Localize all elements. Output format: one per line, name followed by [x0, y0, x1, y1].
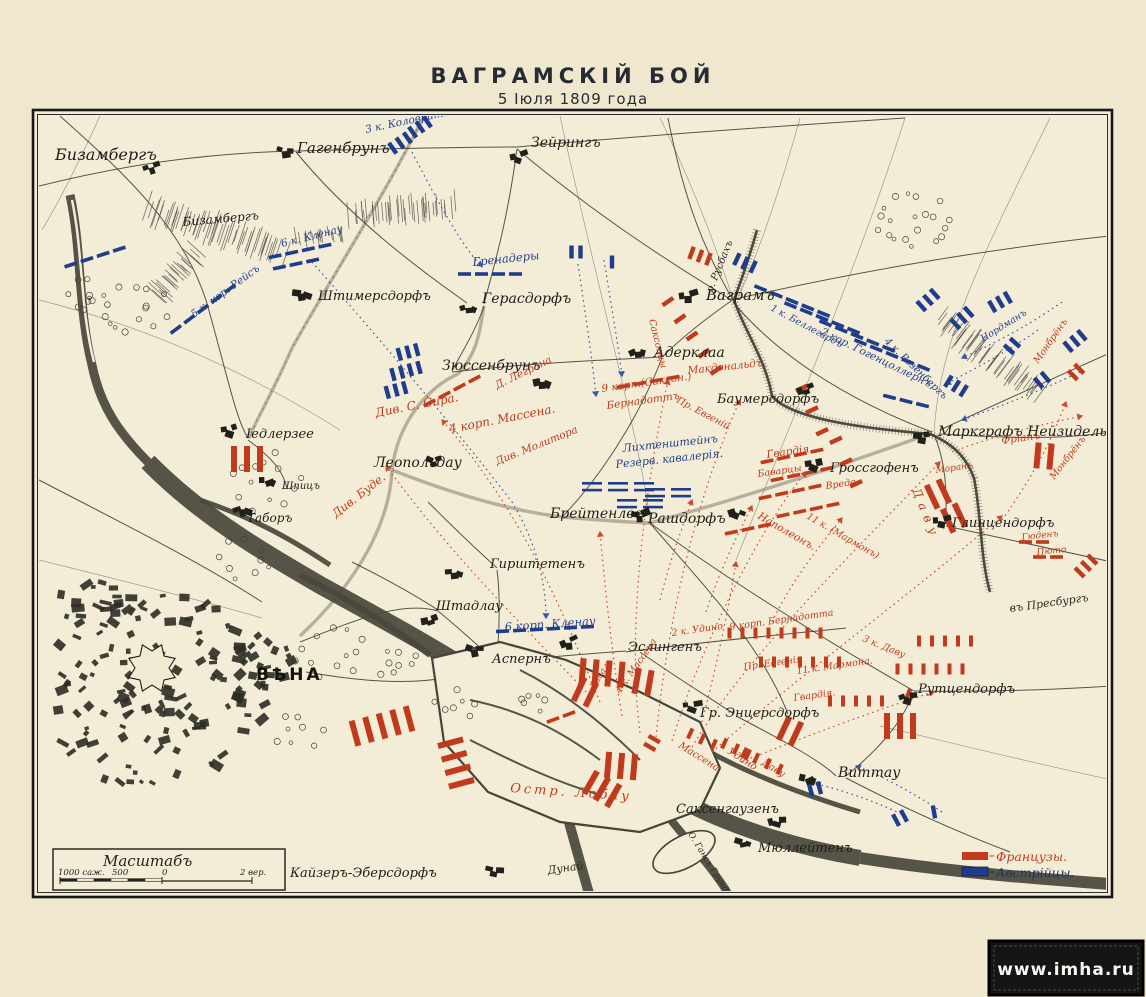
town-label: Виттау	[837, 765, 901, 781]
town-label: Рутцендорфъ	[917, 682, 1016, 697]
french-unit-symbol	[604, 752, 638, 781]
watermark-url: www.imha.ru	[997, 960, 1135, 980]
french-unit-symbol	[231, 446, 263, 472]
austrian-unit-symbol	[610, 256, 614, 269]
town-label: Іедлерзее	[245, 427, 314, 442]
town-label: Штимерсдорфъ	[317, 289, 431, 304]
scale-label: 2 вер.	[239, 868, 266, 878]
french-unit-symbol	[884, 713, 916, 739]
town-label: Зейрингъ	[531, 135, 601, 151]
map-subtitle: 5 Іюля 1809 года	[498, 90, 648, 108]
town-label: Герасдорфъ	[481, 291, 571, 307]
scale-label: 1000 саж.	[58, 868, 105, 878]
scale-label: 0	[162, 868, 168, 878]
french-legend-label: Французы.	[996, 849, 1067, 864]
town-label: Гр. Энцерсдорфъ	[699, 706, 820, 721]
town-label: ВѢНА	[256, 665, 323, 685]
town-label: Рашдорфъ	[647, 511, 726, 527]
town-label: Бизамбергъ	[54, 145, 157, 164]
wagram-battle-map: ВАГРАМСКІЙ БОЙ 5 Іюля 1809 года	[0, 0, 1146, 997]
map-sheet: ВАГРАМСКІЙ БОЙ 5 Іюля 1809 года	[0, 0, 1146, 997]
town-label: Баумерсдорфъ	[716, 392, 819, 407]
town-label: Брейтенлее	[549, 506, 643, 522]
map-title: ВАГРАМСКІЙ БОЙ	[431, 63, 716, 88]
town-label: Шпицъ	[281, 481, 320, 492]
french-legend-swatch	[962, 852, 988, 860]
town-label: Таборъ	[247, 511, 292, 525]
austrian-legend-label: Австрійцы.	[995, 865, 1075, 880]
town-label: Аспернъ	[491, 652, 551, 667]
town-label: Леопольдау	[373, 455, 463, 471]
town-label: Штадлау	[435, 599, 503, 614]
austrian-legend-swatch	[962, 867, 988, 876]
town-label: Гирштетенъ	[489, 557, 585, 572]
scale-label: 500	[112, 868, 129, 878]
town-label: Гроссгофенъ	[829, 461, 919, 476]
watermark-stamp: www.imha.ru	[989, 941, 1143, 995]
town-label: Глинцендорфъ	[951, 516, 1055, 531]
scale-box: Масштабъ 1000 саж.50002 вер.	[53, 849, 285, 890]
town-label: Саксенгаузенъ	[676, 802, 779, 817]
town-label: Мюллейтенъ	[757, 841, 853, 856]
town-label: Кайзеръ-Эберсдорфъ	[289, 866, 437, 881]
town-label: Гагенбрунъ	[296, 139, 390, 157]
